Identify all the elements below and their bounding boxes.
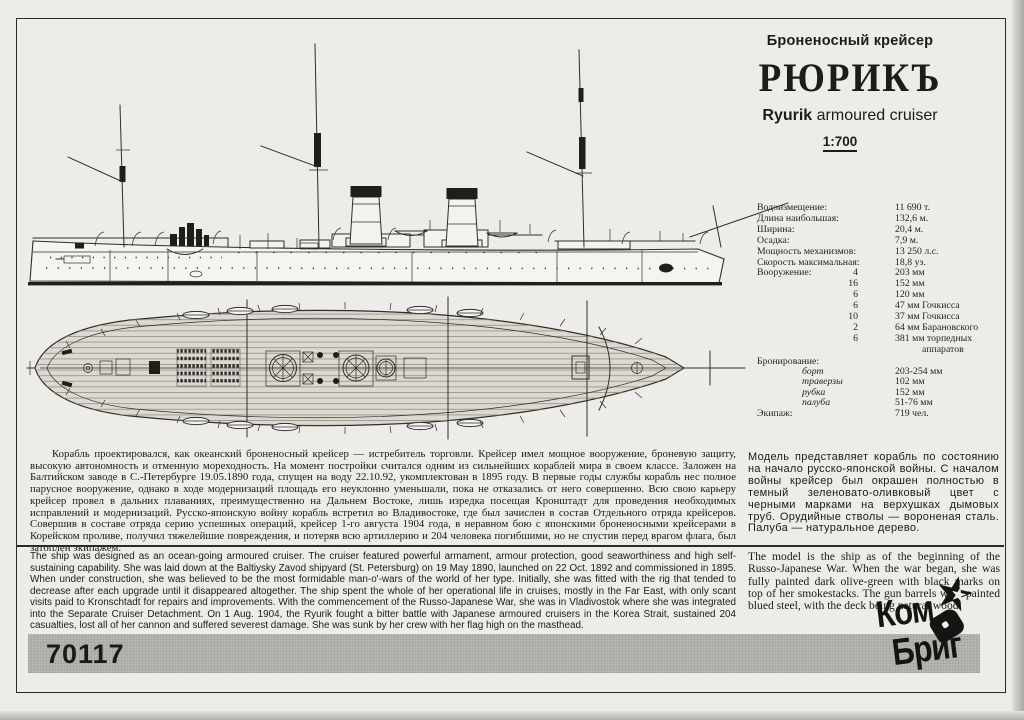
history-paragraph-russian: Корабль проектировался, как океанский бр… [30,449,736,554]
ship-side-profile-drawing [28,44,788,285]
ship-drawings [20,22,792,446]
waterline [28,282,722,285]
spec-row: 6381 мм торпедных [757,334,1005,345]
scale-label: 1:700 [823,134,858,152]
mizzenmast [527,50,592,247]
spec-row: 647 мм Гочкисса [757,301,1005,312]
instruction-sheet-page: Броненосный крейсер РЮРИКЪ Ryurik armour… [0,0,1024,720]
mainmast [261,44,328,247]
crew-label: Экипаж: [757,408,858,419]
footer-band: 70117 [28,634,980,673]
armor-row: борт203-254 мм [757,367,1005,377]
crew-row: Экипаж: 719 чел. [757,408,1005,419]
ship-deck-plan-drawing [27,297,745,439]
anchor [75,243,84,249]
spec-row: Осадка:7,9 м. [757,236,1005,247]
funnel-2 [446,188,478,246]
armor-row: рубка152 мм [757,388,1005,398]
history-paragraph-english: The ship was designed as an ocean-going … [30,551,736,632]
funnel-1 [350,186,382,244]
ventilator-cluster [170,223,209,246]
armor-table: Бронирование: борт203-254 мм траверзы102… [757,357,1005,408]
spec-row: Вооружение:4203 мм [757,268,1005,279]
scan-edge [0,711,1024,720]
spec-row: 6120 мм [757,290,1005,301]
armor-row: палуба51-76 мм [757,398,1005,408]
skylight-grid [177,349,206,386]
title-block: Броненосный крейсер РЮРИКЪ Ryurik armour… [750,33,950,152]
foremast [68,105,130,247]
horizontal-divider [16,545,1004,547]
spec-row: аппаратов [757,345,1005,356]
scan-edge [1012,0,1024,720]
crew-value: 719 чел. [858,408,1005,419]
ship-class-label: Броненосный крейсер [750,33,950,49]
logo-text-line2: Бриг [890,623,964,674]
paint-note-russian: Модель представляет корабль по состоянию… [748,452,999,535]
ship-name-english: Ryurik armoured cruiser [750,107,950,125]
armor-title: Бронирование: [757,357,1005,367]
spec-row: Мощность механизмов:13 250 л.с. [757,247,1005,258]
spec-row: Ширина:20,4 м. [757,225,1005,236]
specifications-table: Водоизмещение:11 690 т. Длина наибольшая… [757,203,1005,356]
skylight-grid [211,349,240,386]
ship-name: РЮРИКЪ [750,55,950,101]
spec-row: 16152 мм [757,279,1005,290]
combrig-logo: ★ ★ Ком Бриг [876,578,1002,688]
kit-number: 70117 [46,639,125,670]
armor-row: траверзы102 мм [757,377,1005,387]
